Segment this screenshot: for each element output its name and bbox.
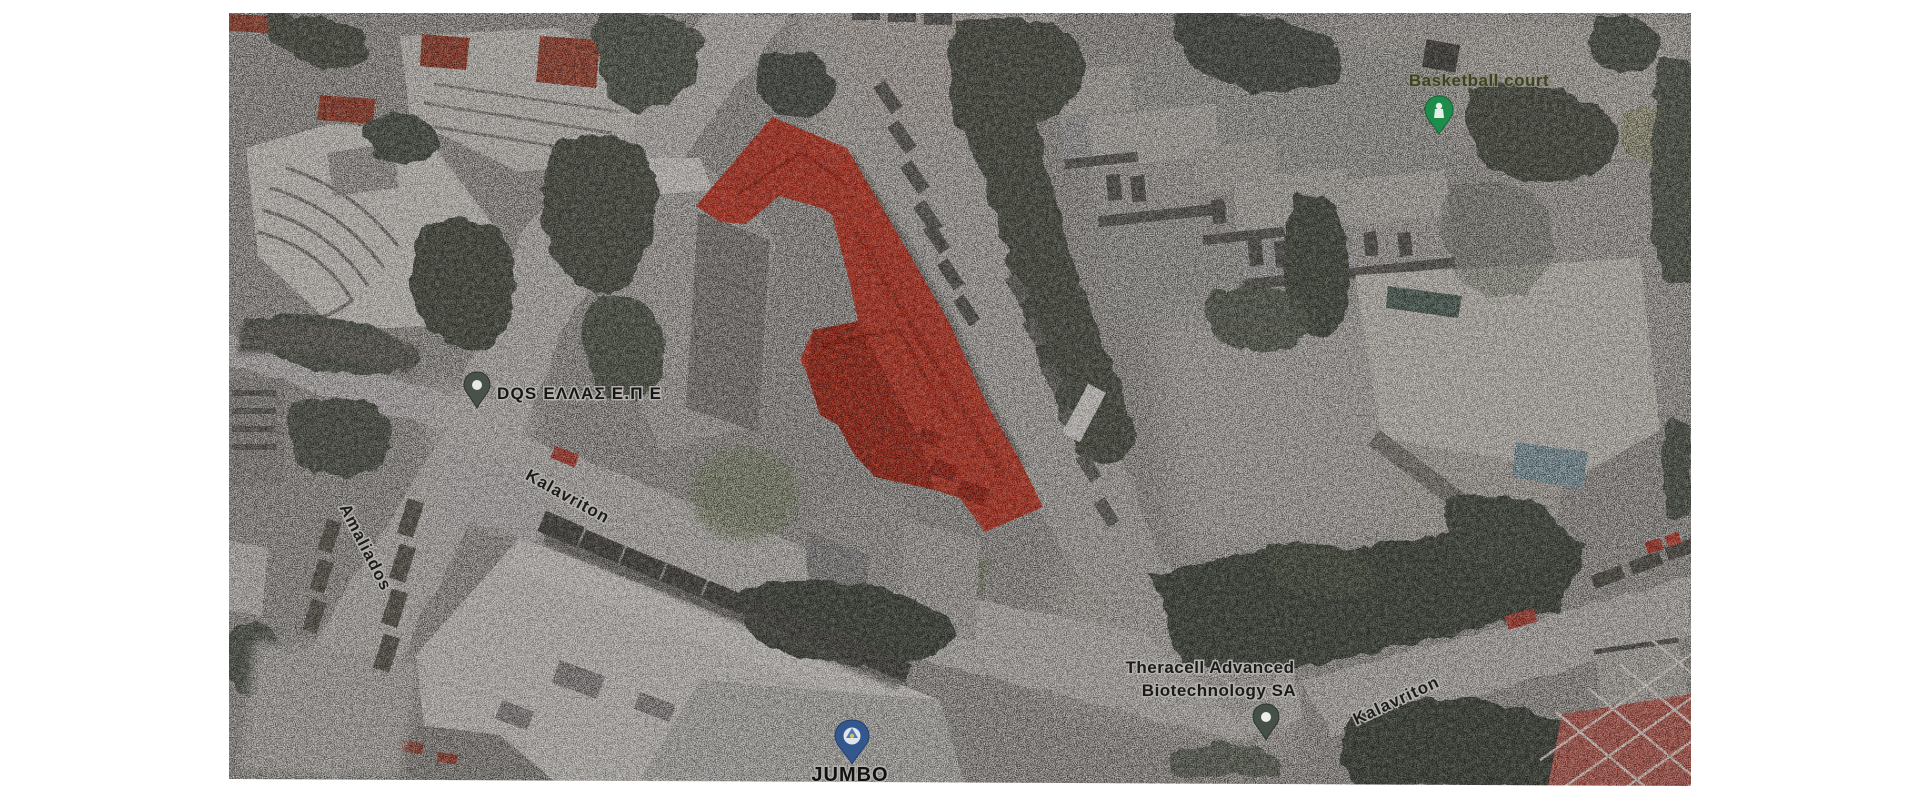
svg-text:Biotechnology SA: Biotechnology SA (1142, 681, 1296, 700)
svg-text:DQS ΕΛΛΑΣ Ε.Π Ε: DQS ΕΛΛΑΣ Ε.Π Ε (497, 384, 662, 403)
svg-text:Theracell Advanced: Theracell Advanced (1126, 658, 1295, 677)
svg-text:Basketball court: Basketball court (1409, 71, 1549, 90)
